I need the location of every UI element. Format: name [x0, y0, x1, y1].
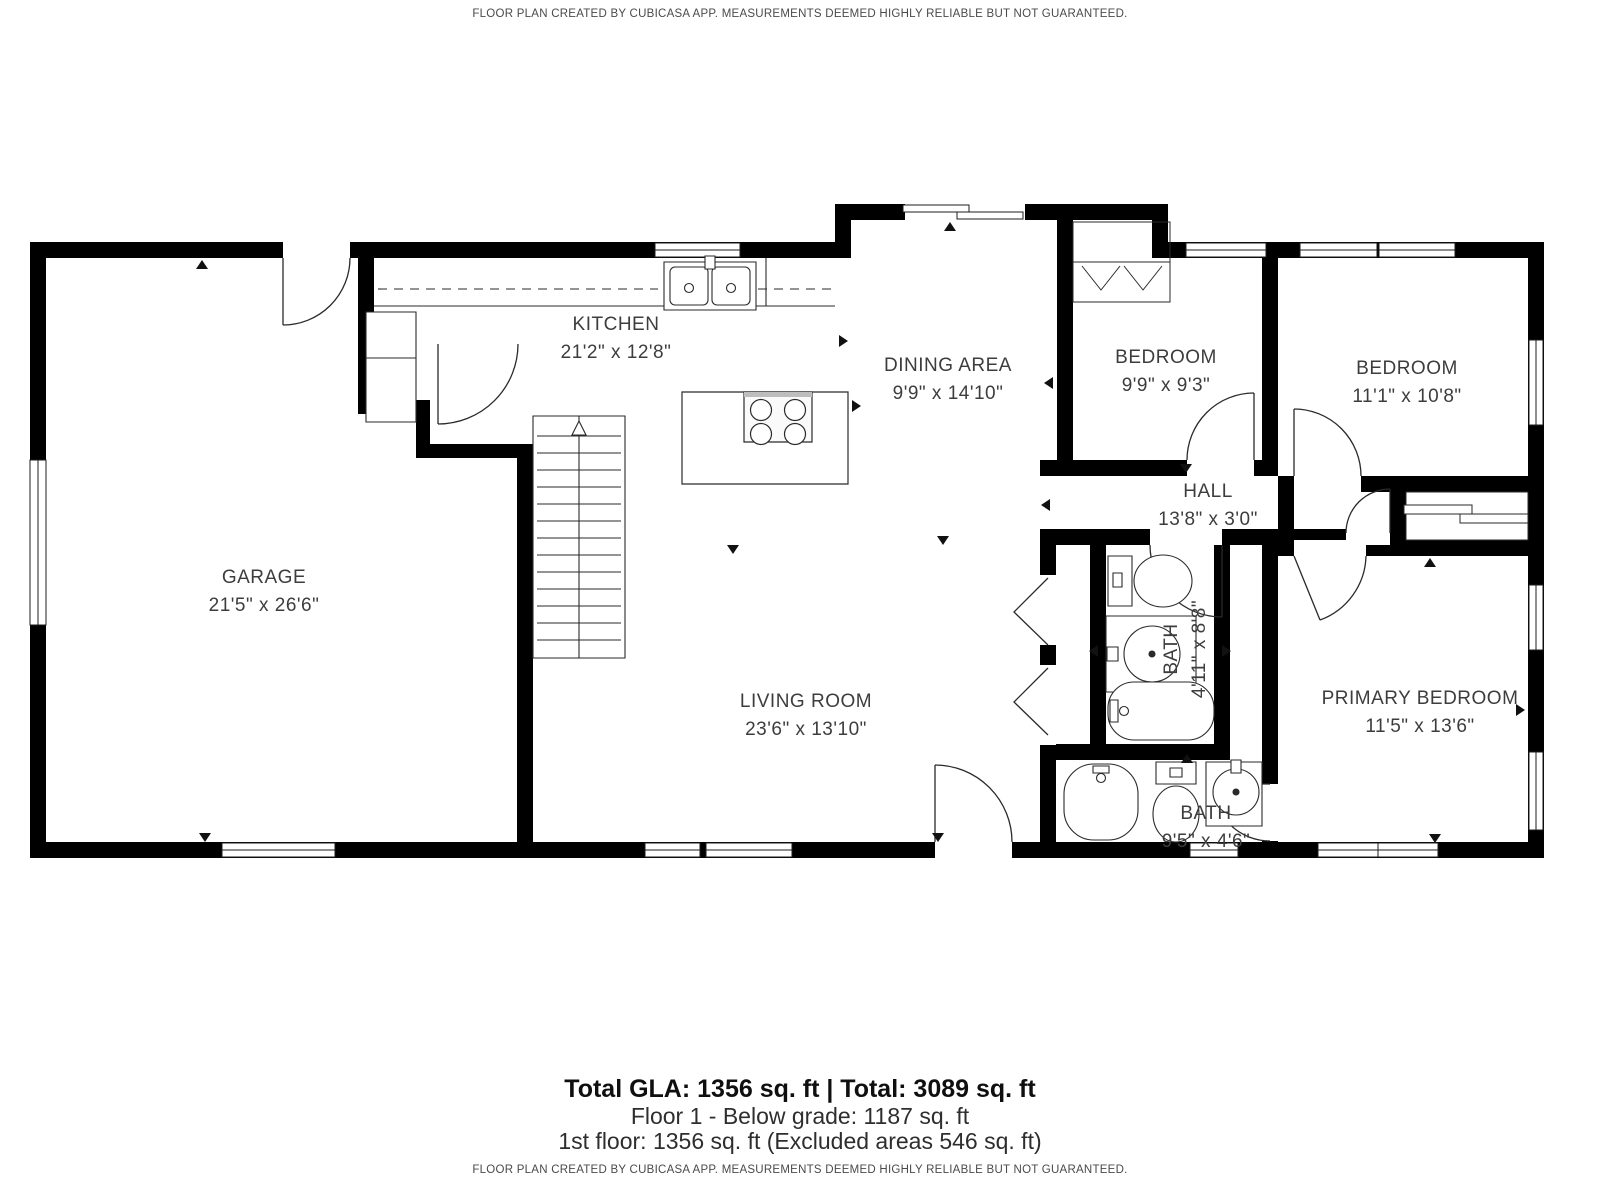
- room-name: LIVING ROOM: [740, 688, 872, 716]
- window: [1318, 843, 1438, 857]
- room-name: BATH: [1158, 600, 1186, 698]
- room-dims: 9'9" x 9'3": [1115, 372, 1217, 400]
- room-name: HALL: [1158, 478, 1258, 506]
- window: [1529, 752, 1543, 830]
- summary-first-floor: 1st floor: 1356 sq. ft (Excluded areas 5…: [0, 1129, 1600, 1154]
- room-dims: 9'9" x 14'10": [884, 380, 1012, 408]
- summary-block: Total GLA: 1356 sq. ft | Total: 3089 sq.…: [0, 1074, 1600, 1154]
- window: [1300, 243, 1377, 257]
- window: [1379, 243, 1455, 257]
- window: [655, 243, 740, 257]
- door-arc-pantry: [438, 344, 518, 424]
- room-label-bath-2: BATH 9'5" x 4'6": [1162, 800, 1251, 856]
- closet-sliding-doors: [1404, 492, 1528, 540]
- room-dims: 21'5" x 26'6": [209, 592, 320, 620]
- room-dims: 9'5" x 4'6": [1162, 828, 1251, 856]
- door-arc-bedroom-1: [1187, 393, 1254, 460]
- window: [645, 843, 700, 857]
- kitchen-island: [682, 392, 848, 484]
- room-dims: 4'11" x 8'8": [1186, 600, 1214, 698]
- room-name: DINING AREA: [884, 352, 1012, 380]
- bottom-disclaimer: FLOOR PLAN CREATED BY CUBICASA APP. MEAS…: [0, 1164, 1600, 1176]
- room-label-kitchen: KITCHEN 21'2" x 12'8": [561, 311, 672, 367]
- window: [222, 843, 335, 857]
- room-name: GARAGE: [209, 564, 320, 592]
- window: [706, 843, 792, 857]
- room-name: BEDROOM: [1115, 344, 1217, 372]
- bathtub-icon: [1064, 764, 1138, 840]
- room-label-bedroom-2: BEDROOM 11'1" x 10'8": [1352, 355, 1461, 411]
- room-label-dining-area: DINING AREA 9'9" x 14'10": [884, 352, 1012, 408]
- room-label-primary-bedroom: PRIMARY BEDROOM 11'5" x 13'6": [1322, 685, 1519, 741]
- room-label-living-room: LIVING ROOM 23'6" x 13'10": [740, 688, 872, 744]
- room-dims: 13'8" x 3'0": [1158, 506, 1258, 534]
- room-label-bedroom-1: BEDROOM 9'9" x 9'3": [1115, 344, 1217, 400]
- door-arc-entry: [935, 765, 1012, 842]
- room-dims: 11'5" x 13'6": [1322, 713, 1519, 741]
- cooktop-icon: [744, 392, 812, 445]
- kitchen-sink-icon: [664, 256, 756, 310]
- walls: [30, 204, 1544, 858]
- room-label-garage: GARAGE 21'5" x 26'6": [209, 564, 320, 620]
- room-label-bath-1: BATH 4'11" x 8'8": [1158, 600, 1214, 698]
- summary-floor1: Floor 1 - Below grade: 1187 sq. ft: [0, 1104, 1600, 1129]
- room-dims: 21'2" x 12'8": [561, 339, 672, 367]
- room-name: KITCHEN: [561, 311, 672, 339]
- window: [30, 460, 46, 625]
- floorplan-page: FLOOR PLAN CREATED BY CUBICASA APP. MEAS…: [0, 0, 1600, 1200]
- room-name: BEDROOM: [1352, 355, 1461, 383]
- door-arc-garage: [283, 258, 350, 325]
- window: [1529, 585, 1543, 650]
- room-label-hall: HALL 13'8" x 3'0": [1158, 478, 1258, 534]
- door-arc-hall-closet: [1346, 489, 1390, 533]
- room-dims: 23'6" x 13'10": [740, 716, 872, 744]
- window: [1529, 340, 1543, 425]
- summary-total: Total GLA: 1356 sq. ft | Total: 3089 sq.…: [0, 1074, 1600, 1104]
- door-arc-bedroom-2: [1294, 409, 1361, 476]
- door-arc-primary: [1294, 556, 1366, 620]
- room-dims: 11'1" x 10'8": [1352, 383, 1461, 411]
- stairs: [533, 416, 625, 658]
- room-name: PRIMARY BEDROOM: [1322, 685, 1519, 713]
- window: [1186, 243, 1266, 257]
- room-name: BATH: [1162, 800, 1251, 828]
